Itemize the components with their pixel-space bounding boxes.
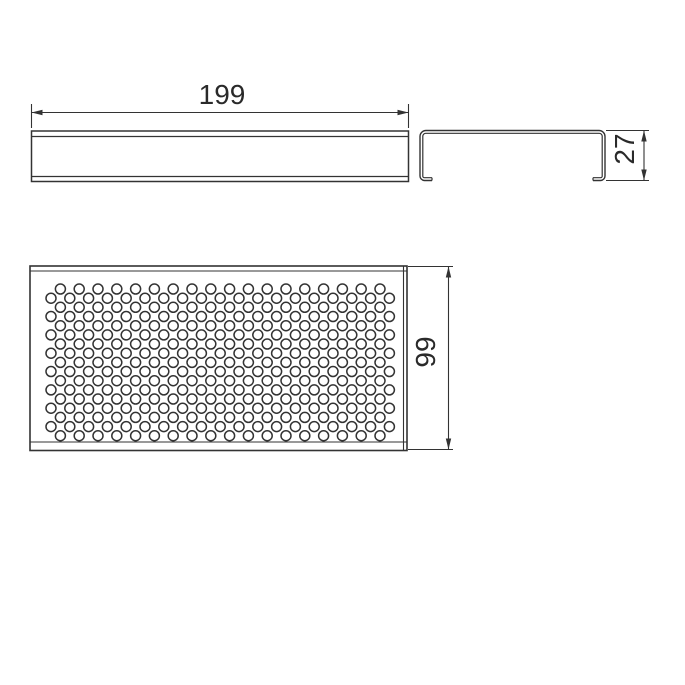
perforation-hole [290, 385, 300, 395]
perforation-hole [131, 431, 141, 441]
perforation-hole [290, 422, 300, 432]
perforation-hole [93, 302, 103, 312]
perforation-hole [281, 412, 291, 422]
perforation-hole [225, 339, 235, 349]
perforation-hole [319, 284, 329, 294]
perforation-hole [262, 431, 272, 441]
perforation-hole [168, 302, 178, 312]
perforation-hole [102, 403, 112, 413]
perforation-hole [253, 348, 263, 358]
dim-width-label: 99 [398, 324, 454, 380]
perforation-hole [272, 385, 282, 395]
perforation-hole [93, 357, 103, 367]
perforation-hole [309, 312, 319, 322]
perforation-hole [84, 367, 94, 377]
perforation-hole [337, 376, 347, 386]
perforation-hole-grid [46, 284, 394, 441]
perforation-hole [375, 339, 385, 349]
perforation-hole [168, 412, 178, 422]
perforation-hole [290, 330, 300, 340]
perforation-hole [102, 348, 112, 358]
perforation-hole [178, 403, 188, 413]
perforation-hole [55, 284, 65, 294]
perforation-hole [375, 284, 385, 294]
perforation-hole [234, 385, 244, 395]
perforation-hole [187, 302, 197, 312]
channel-front-view [32, 131, 409, 182]
dim-height-label: 27 [597, 121, 653, 177]
perforation-hole [168, 321, 178, 331]
perforation-hole [102, 422, 112, 432]
perforation-hole [74, 302, 84, 312]
perforation-hole [215, 330, 225, 340]
perforation-hole [337, 357, 347, 367]
perforation-hole [272, 330, 282, 340]
perforation-hole [384, 330, 394, 340]
perforation-hole [131, 394, 141, 404]
perforation-hole [243, 302, 253, 312]
perforation-hole [356, 394, 366, 404]
perforation-hole [74, 321, 84, 331]
perforation-hole [215, 312, 225, 322]
perforation-hole [168, 394, 178, 404]
profile-inner-contour [423, 133, 602, 177]
perforation-hole [84, 293, 94, 303]
perforation-hole [93, 431, 103, 441]
perforation-hole [102, 330, 112, 340]
perforation-hole [347, 330, 357, 340]
perforation-hole [140, 330, 150, 340]
perforation-hole [187, 431, 197, 441]
perforation-hole [356, 376, 366, 386]
perforation-hole [300, 284, 310, 294]
perforation-hole [243, 321, 253, 331]
perforation-hole [206, 339, 216, 349]
perforation-hole [74, 394, 84, 404]
perforation-hole [46, 403, 56, 413]
perforation-hole [121, 312, 131, 322]
profile-outer-contour [420, 131, 605, 181]
perforation-hole [206, 357, 216, 367]
perforation-hole [309, 293, 319, 303]
perforation-hole [206, 284, 216, 294]
perforation-hole [366, 293, 376, 303]
perforation-hole [74, 431, 84, 441]
perforation-hole [319, 376, 329, 386]
perforation-hole [187, 412, 197, 422]
perforation-hole [65, 293, 75, 303]
perforation-hole [384, 312, 394, 322]
perforation-hole [206, 431, 216, 441]
perforation-hole [215, 293, 225, 303]
perforation-hole [206, 302, 216, 312]
perforation-hole [328, 422, 338, 432]
perforation-hole [337, 394, 347, 404]
perforation-hole [337, 431, 347, 441]
perforation-hole [272, 367, 282, 377]
perforation-hole [74, 357, 84, 367]
perforation-hole [262, 394, 272, 404]
perforation-hole [347, 312, 357, 322]
perforation-hole [149, 339, 159, 349]
perforation-hole [328, 330, 338, 340]
perforation-hole [290, 367, 300, 377]
perforation-hole [347, 385, 357, 395]
perforation-hole [356, 302, 366, 312]
perforation-hole [187, 339, 197, 349]
perforation-hole [74, 412, 84, 422]
perforation-hole [328, 385, 338, 395]
perforation-hole [253, 403, 263, 413]
perforation-hole [168, 357, 178, 367]
perforation-hole [206, 321, 216, 331]
perforation-hole [384, 367, 394, 377]
perforation-hole [149, 302, 159, 312]
perforation-hole [225, 431, 235, 441]
perforation-hole [290, 348, 300, 358]
perforation-hole [55, 431, 65, 441]
perforation-hole [262, 412, 272, 422]
perforation-hole [225, 394, 235, 404]
perforation-hole [337, 321, 347, 331]
perforation-hole [102, 293, 112, 303]
perforation-hole [121, 330, 131, 340]
perforation-hole [243, 431, 253, 441]
perforation-hole [356, 412, 366, 422]
perforation-hole [347, 348, 357, 358]
perforation-hole [225, 376, 235, 386]
perforation-hole [74, 339, 84, 349]
perforation-hole [140, 312, 150, 322]
perforation-hole [300, 357, 310, 367]
perforation-hole [159, 312, 169, 322]
dim-length-label: 199 [172, 81, 272, 109]
perforation-hole [272, 403, 282, 413]
perforation-hole [337, 339, 347, 349]
perforation-hole [243, 412, 253, 422]
perforation-hole [55, 302, 65, 312]
perforation-hole [131, 321, 141, 331]
perforation-hole [215, 367, 225, 377]
perforation-hole [300, 339, 310, 349]
perforation-hole [262, 302, 272, 312]
perforation-hole [149, 376, 159, 386]
perforation-hole [65, 348, 75, 358]
perforation-hole [112, 284, 122, 294]
perforation-hole [140, 422, 150, 432]
perforation-hole [384, 293, 394, 303]
perforation-hole [140, 403, 150, 413]
perforation-hole [121, 403, 131, 413]
perforation-hole [234, 293, 244, 303]
perforation-hole [290, 312, 300, 322]
perforation-hole [366, 312, 376, 322]
perforation-hole [187, 357, 197, 367]
perforation-hole [206, 376, 216, 386]
perforation-hole [196, 403, 206, 413]
perforation-hole [149, 412, 159, 422]
perforation-hole [281, 321, 291, 331]
perforation-hole [46, 293, 56, 303]
perforation-hole [121, 348, 131, 358]
perforation-hole [74, 376, 84, 386]
perforation-hole [225, 321, 235, 331]
perforation-hole [337, 412, 347, 422]
perforation-hole [102, 312, 112, 322]
perforation-hole [309, 385, 319, 395]
perforation-hole [281, 431, 291, 441]
technical-drawing-page: 199 27 99 [0, 0, 685, 685]
perforation-hole [225, 412, 235, 422]
perforation-hole [196, 367, 206, 377]
perforation-hole [112, 357, 122, 367]
perforation-hole [375, 357, 385, 367]
perforation-hole [366, 422, 376, 432]
perforation-hole [281, 394, 291, 404]
perforation-hole [253, 385, 263, 395]
perforation-hole [196, 422, 206, 432]
perforation-hole [149, 284, 159, 294]
perforation-hole [253, 367, 263, 377]
perforation-hole [149, 394, 159, 404]
perforation-hole [347, 367, 357, 377]
perforation-hole [149, 431, 159, 441]
perforation-hole [159, 422, 169, 432]
perforation-hole [366, 348, 376, 358]
perforation-hole [347, 293, 357, 303]
perforation-hole [112, 412, 122, 422]
perforation-hole [384, 422, 394, 432]
perforation-hole [46, 348, 56, 358]
perforation-hole [309, 348, 319, 358]
perforation-hole [131, 412, 141, 422]
perforation-hole [46, 367, 56, 377]
perforation-hole [187, 321, 197, 331]
perforation-hole [319, 339, 329, 349]
perforation-hole [309, 330, 319, 340]
perforation-hole [300, 394, 310, 404]
perforation-hole [243, 394, 253, 404]
perforation-hole [65, 403, 75, 413]
perforation-hole [309, 403, 319, 413]
perforation-hole [196, 312, 206, 322]
perforation-hole [319, 431, 329, 441]
perforation-hole [187, 394, 197, 404]
perforation-hole [65, 422, 75, 432]
perforation-hole [112, 394, 122, 404]
perforation-hole [225, 284, 235, 294]
perforation-hole [309, 367, 319, 377]
perforation-hole [46, 422, 56, 432]
perforation-hole [187, 376, 197, 386]
perforation-hole [234, 348, 244, 358]
perforation-hole [290, 293, 300, 303]
perforation-hole [46, 330, 56, 340]
channel-end-profile-view [420, 131, 605, 181]
perforation-hole [178, 330, 188, 340]
perforation-hole [149, 357, 159, 367]
arrowhead-up-icon [446, 267, 451, 278]
perforation-hole [328, 367, 338, 377]
perforation-hole [159, 385, 169, 395]
perforation-hole [300, 376, 310, 386]
perforation-hole [140, 293, 150, 303]
perforation-hole [168, 284, 178, 294]
perforation-hole [93, 412, 103, 422]
perforation-hole [159, 367, 169, 377]
perforation-hole [178, 312, 188, 322]
perforation-hole [55, 412, 65, 422]
perforation-hole [225, 357, 235, 367]
perforation-hole [319, 357, 329, 367]
perforation-hole [112, 339, 122, 349]
perforation-hole [243, 357, 253, 367]
perforation-hole [300, 431, 310, 441]
perforation-hole [243, 284, 253, 294]
perforation-hole [93, 394, 103, 404]
perforation-hole [93, 321, 103, 331]
perforation-hole [93, 339, 103, 349]
perforation-hole [159, 403, 169, 413]
perforation-hole [356, 321, 366, 331]
perforation-hole [347, 403, 357, 413]
perforation-hole [178, 422, 188, 432]
perforation-hole [337, 302, 347, 312]
perforation-hole [309, 422, 319, 432]
perforation-hole [131, 302, 141, 312]
perforation-hole [46, 385, 56, 395]
perforation-hole [93, 376, 103, 386]
perforation-hole [356, 431, 366, 441]
perforation-hole [262, 284, 272, 294]
perforation-hole [168, 431, 178, 441]
perforation-hole [55, 357, 65, 367]
perforation-hole [55, 321, 65, 331]
perforation-hole [234, 422, 244, 432]
perforation-hole [253, 312, 263, 322]
perforation-hole [168, 339, 178, 349]
perforation-hole [337, 284, 347, 294]
technical-drawing [0, 0, 685, 685]
perforation-hole [55, 376, 65, 386]
perforation-hole [347, 422, 357, 432]
perforation-hole [234, 403, 244, 413]
perforation-hole [84, 422, 94, 432]
perforation-hole [384, 348, 394, 358]
perforation-hole [225, 302, 235, 312]
perforation-hole [290, 403, 300, 413]
perforation-hole [253, 330, 263, 340]
perforation-hole [121, 293, 131, 303]
perforation-hole [281, 302, 291, 312]
front-view-outline [32, 131, 409, 182]
perforation-hole [84, 348, 94, 358]
perforation-hole [168, 376, 178, 386]
perforation-hole [375, 431, 385, 441]
perforation-hole [178, 367, 188, 377]
arrowhead-right-icon [398, 110, 409, 115]
perforation-hole [272, 348, 282, 358]
perforation-hole [65, 312, 75, 322]
perforation-hole [300, 412, 310, 422]
perforation-hole [234, 312, 244, 322]
perforation-hole [281, 357, 291, 367]
perforation-hole [46, 312, 56, 322]
perforation-hole [328, 348, 338, 358]
perforation-hole [121, 422, 131, 432]
perforation-hole [319, 394, 329, 404]
perforation-hole [366, 385, 376, 395]
perforation-hole [366, 330, 376, 340]
perforation-hole [131, 339, 141, 349]
perforation-hole [112, 321, 122, 331]
perforation-hole [215, 403, 225, 413]
perforation-hole [84, 385, 94, 395]
perforation-hole [178, 293, 188, 303]
perforation-hole [112, 302, 122, 312]
perforation-hole [215, 385, 225, 395]
perforation-hole [159, 293, 169, 303]
perforation-hole [272, 422, 282, 432]
perforation-hole [262, 339, 272, 349]
perforation-hole [262, 376, 272, 386]
perforation-hole [375, 302, 385, 312]
perforation-hole [112, 431, 122, 441]
perforation-hole [131, 357, 141, 367]
perforation-hole [84, 403, 94, 413]
perforation-hole [159, 330, 169, 340]
perforation-hole [319, 321, 329, 331]
perforation-hole [196, 330, 206, 340]
perforation-hole [84, 312, 94, 322]
perforation-hole [234, 367, 244, 377]
perforation-hole [234, 330, 244, 340]
perforation-hole [272, 312, 282, 322]
perforation-hole [55, 394, 65, 404]
perforation-hole [328, 293, 338, 303]
perforation-hole [131, 284, 141, 294]
perforation-hole [206, 394, 216, 404]
perforation-hole [93, 284, 103, 294]
perforation-hole [253, 422, 263, 432]
perforation-hole [84, 330, 94, 340]
perforation-hole [375, 321, 385, 331]
perforation-hole [65, 385, 75, 395]
arrowhead-left-icon [32, 110, 43, 115]
perforation-hole [300, 321, 310, 331]
perforation-hole [55, 339, 65, 349]
perforation-hole [187, 284, 197, 294]
perforation-hole [243, 376, 253, 386]
perforation-hole [328, 312, 338, 322]
perforation-hole [140, 348, 150, 358]
perforation-hole [319, 412, 329, 422]
perforation-hole [121, 385, 131, 395]
perforated-plate-top-view [30, 266, 407, 451]
perforation-hole [328, 403, 338, 413]
perforation-hole [196, 385, 206, 395]
perforation-hole [140, 367, 150, 377]
perforation-hole [366, 403, 376, 413]
perforation-hole [384, 385, 394, 395]
perforation-hole [196, 293, 206, 303]
arrowhead-down-icon [446, 439, 451, 450]
perforation-hole [74, 284, 84, 294]
perforation-hole [384, 403, 394, 413]
perforation-hole [281, 376, 291, 386]
perforation-hole [131, 376, 141, 386]
perforation-hole [300, 302, 310, 312]
